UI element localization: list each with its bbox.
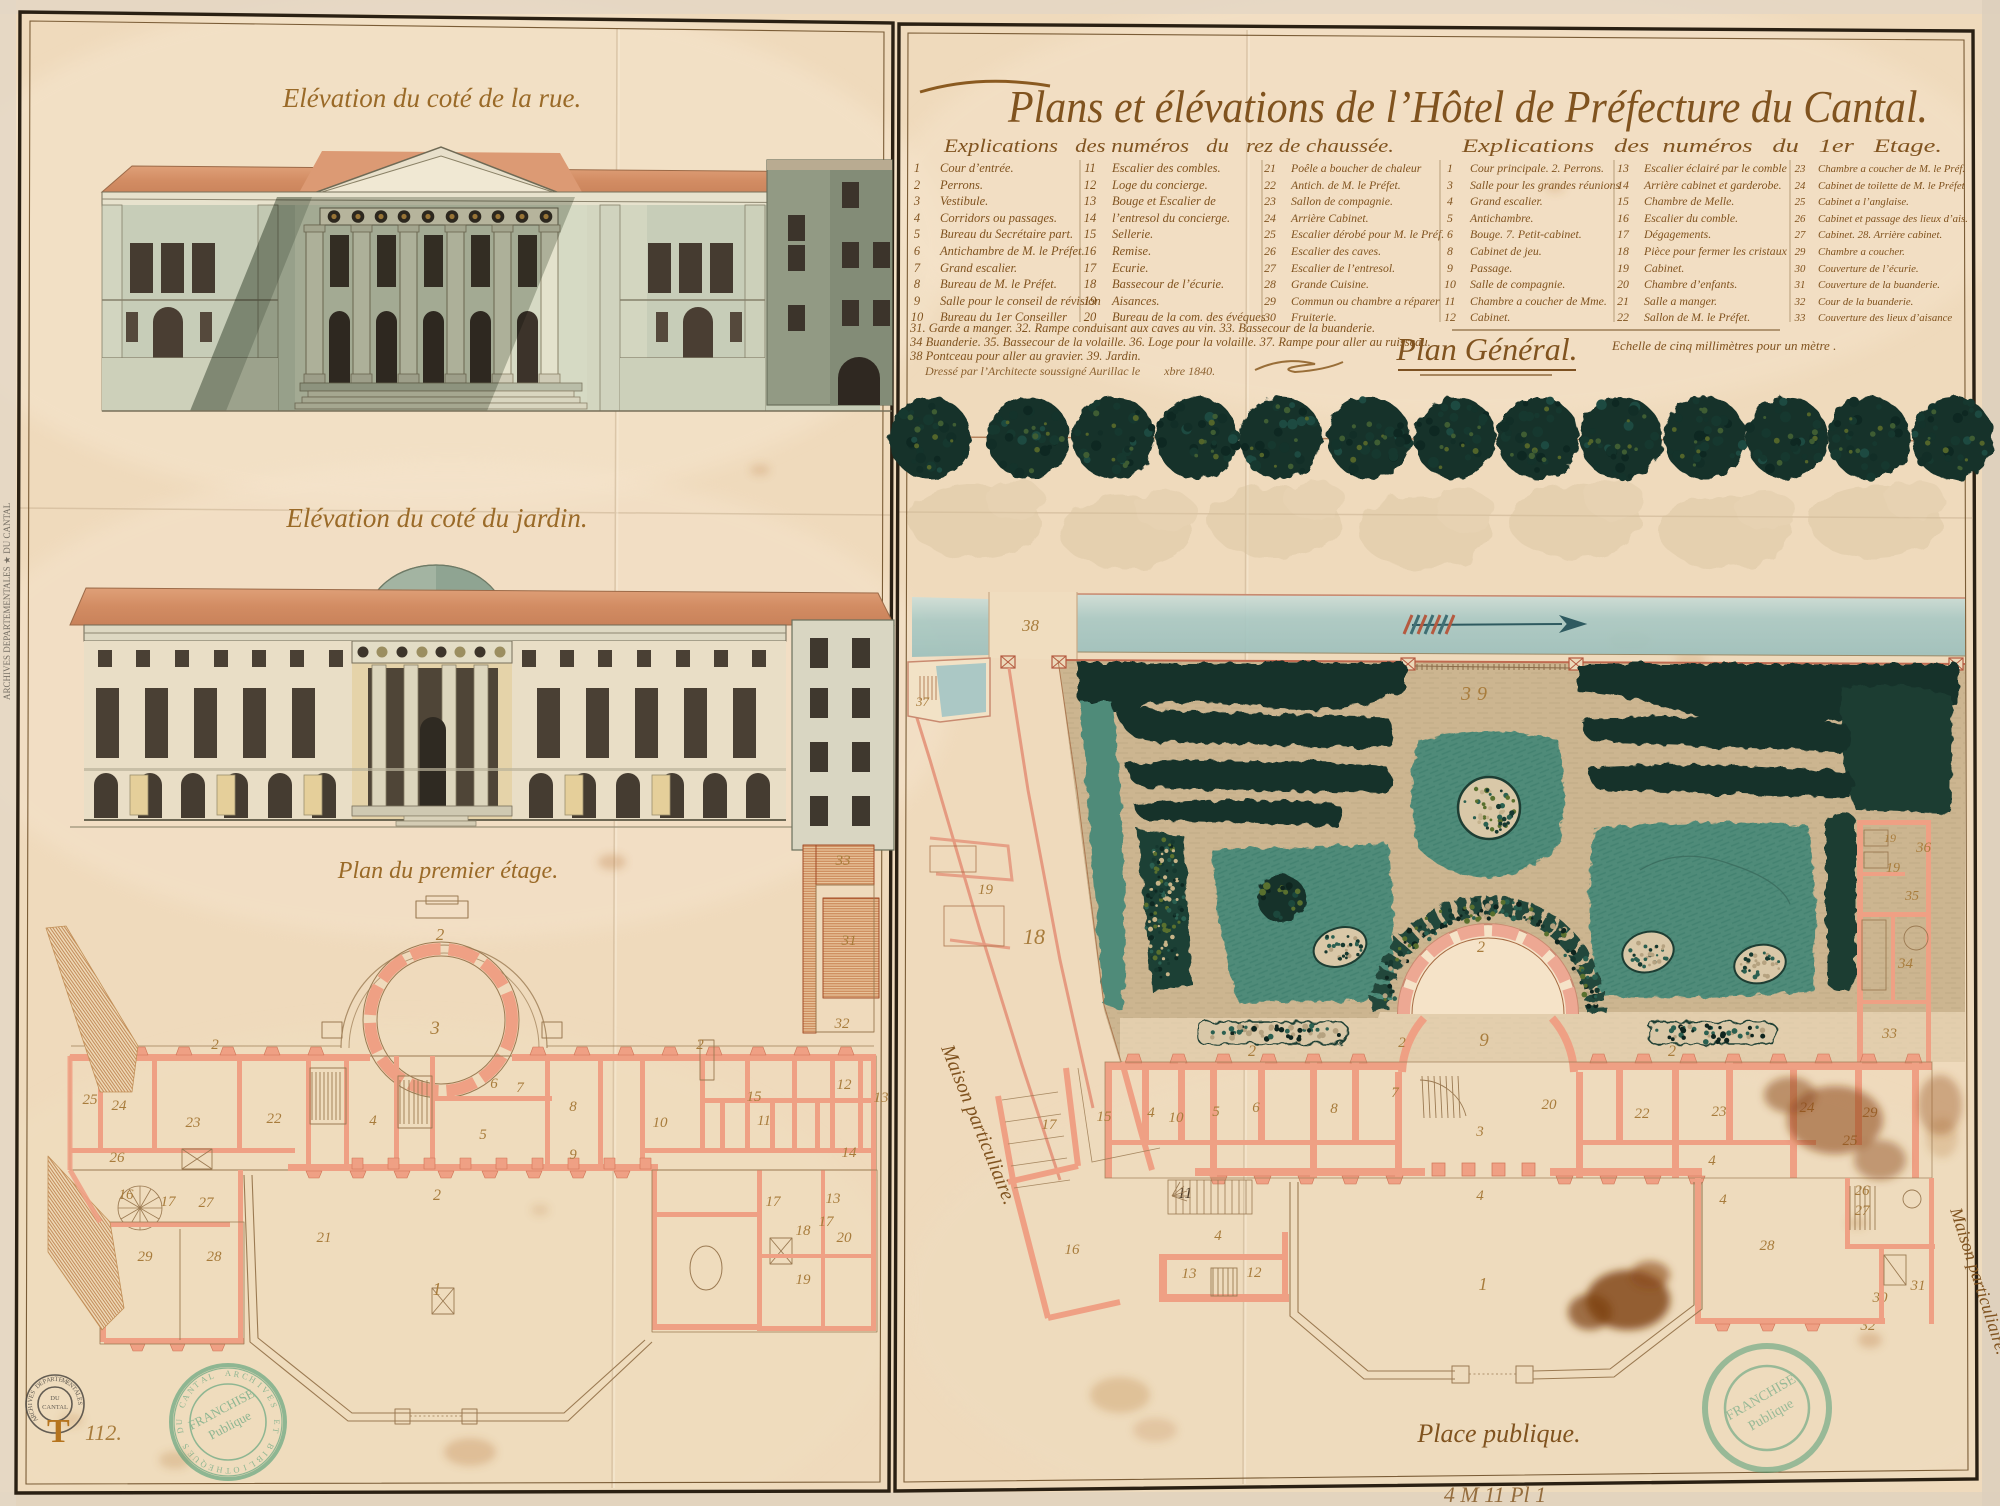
- svg-text:23: 23: [1264, 194, 1276, 208]
- svg-text:27: 27: [199, 1195, 216, 1211]
- svg-text:13: 13: [874, 1090, 889, 1106]
- svg-text:17: 17: [1084, 261, 1097, 275]
- svg-text:Bureau de M. le Préfet.: Bureau de M. le Préfet.: [940, 277, 1057, 291]
- svg-text:CANTAL: CANTAL: [42, 1404, 68, 1411]
- svg-text:Escalier des caves.: Escalier des caves.: [1290, 244, 1381, 258]
- svg-text:26: 26: [1795, 213, 1806, 225]
- svg-text:34: 34: [1897, 956, 1914, 972]
- svg-text:6: 6: [490, 1076, 498, 1092]
- svg-text:17: 17: [819, 1214, 836, 1230]
- svg-text:29: 29: [138, 1249, 154, 1265]
- svg-text:27: 27: [1795, 229, 1806, 241]
- svg-text:30: 30: [1794, 263, 1806, 275]
- svg-text:12: 12: [1084, 178, 1097, 192]
- svg-text:9: 9: [1447, 261, 1453, 275]
- svg-text:Plans et élévations de l’Hôtel: Plans et élévations de l’Hôtel de Préfec…: [1007, 81, 1928, 132]
- svg-text:16: 16: [1084, 244, 1097, 258]
- svg-text:9: 9: [1479, 1030, 1489, 1051]
- svg-text:4: 4: [1708, 1153, 1716, 1169]
- svg-text:4 M 11 Pl 1: 4 M 11 Pl 1: [1444, 1482, 1546, 1506]
- svg-text:T: T: [47, 1413, 70, 1450]
- svg-text:6: 6: [1447, 227, 1453, 241]
- svg-text:18: 18: [1023, 924, 1045, 949]
- svg-text:25: 25: [1264, 227, 1276, 241]
- svg-text:A: A: [225, 1368, 232, 1378]
- svg-text:Remise.: Remise.: [1111, 244, 1151, 258]
- svg-text:19: 19: [1084, 294, 1097, 308]
- svg-text:16: 16: [1065, 1242, 1081, 1258]
- svg-text:4: 4: [1147, 1105, 1155, 1121]
- svg-text:4: 4: [914, 211, 920, 225]
- svg-text:4: 4: [369, 1113, 377, 1129]
- svg-text:22: 22: [1617, 310, 1629, 324]
- svg-text:Loge du concierge.: Loge du concierge.: [1111, 178, 1208, 192]
- svg-text:8: 8: [1330, 1101, 1338, 1117]
- svg-text:Sallon de M. le Préfet.: Sallon de M. le Préfet.: [1644, 310, 1750, 324]
- svg-text:17: 17: [161, 1194, 178, 1210]
- svg-text:Arrière Cabinet.: Arrière Cabinet.: [1290, 211, 1369, 225]
- svg-text:2: 2: [1668, 1043, 1676, 1060]
- svg-text:Cabinet. 28. Arrière cabinet.: Cabinet. 28. Arrière cabinet.: [1818, 229, 1942, 241]
- svg-text:Chambre de Melle.: Chambre de Melle.: [1644, 194, 1734, 208]
- svg-text:Corridors ou passages.: Corridors ou passages.: [940, 211, 1057, 225]
- svg-text:Cabinet a l’anglaise.: Cabinet a l’anglaise.: [1818, 196, 1909, 208]
- svg-text:33: 33: [835, 853, 851, 869]
- svg-text:23: 23: [1795, 163, 1806, 175]
- svg-text:31: 31: [1910, 1278, 1926, 1294]
- svg-text:20: 20: [1617, 277, 1629, 291]
- svg-text:Bassecour de l’écurie.: Bassecour de l’écurie.: [1112, 277, 1224, 291]
- svg-text:28: 28: [1760, 1238, 1776, 1254]
- svg-text:22: 22: [267, 1111, 283, 1127]
- svg-text:29: 29: [1264, 294, 1276, 308]
- svg-text:28: 28: [207, 1249, 223, 1265]
- svg-text:Elévation du coté du jardin.: Elévation du coté du jardin.: [285, 503, 587, 533]
- svg-text:Salle a manger.: Salle a manger.: [1644, 294, 1717, 308]
- svg-text:Chambre a coucher.: Chambre a coucher.: [1818, 246, 1905, 258]
- svg-text:2: 2: [696, 1037, 704, 1053]
- svg-text:28: 28: [1264, 277, 1276, 291]
- svg-text:Commun ou chambre a réparer: Commun ou chambre a réparer: [1291, 294, 1440, 308]
- svg-text:15: 15: [747, 1089, 763, 1105]
- svg-text:Escalier dérobé pour M. le Pré: Escalier dérobé pour M. le Préf.: [1290, 227, 1444, 241]
- svg-text:2: 2: [1398, 1035, 1406, 1051]
- svg-text:12: 12: [1444, 310, 1456, 324]
- svg-text:34 Buanderie. 35. Bassecour de: 34 Buanderie. 35. Bassecour de la volail…: [909, 335, 1431, 349]
- svg-text:19: 19: [796, 1272, 812, 1288]
- svg-text:Chambre a coucher de M. le Pré: Chambre a coucher de M. le Préf.: [1818, 163, 1965, 175]
- svg-text:Sellerie.: Sellerie.: [1112, 227, 1153, 241]
- svg-text:Salle pour les grandes réunion: Salle pour les grandes réunions: [1470, 178, 1620, 192]
- svg-text:31. Garde a manger. 32. Rampe: 31. Garde a manger. 32. Rampe conduisant…: [909, 321, 1375, 335]
- svg-text:Poêle a boucher de chaleur: Poêle a boucher de chaleur: [1290, 161, 1422, 175]
- svg-text:12: 12: [1247, 1265, 1263, 1281]
- svg-text:2: 2: [1477, 939, 1485, 956]
- svg-text:Salle de compagnie.: Salle de compagnie.: [1470, 277, 1565, 291]
- svg-text:5: 5: [914, 227, 920, 241]
- svg-text:33: 33: [1881, 1026, 1897, 1042]
- svg-text:2: 2: [436, 925, 445, 944]
- svg-text:5: 5: [1212, 1104, 1220, 1120]
- svg-text:2: 2: [433, 1187, 441, 1204]
- svg-text:DU: DU: [50, 1395, 60, 1402]
- svg-text:4: 4: [1214, 1228, 1222, 1244]
- svg-text:10: 10: [1169, 1110, 1185, 1126]
- svg-text:Grande Cuisine.: Grande Cuisine.: [1291, 277, 1369, 291]
- svg-text:Sallon de compagnie.: Sallon de compagnie.: [1291, 194, 1393, 208]
- svg-text:26: 26: [110, 1150, 126, 1166]
- svg-text:33: 33: [1794, 312, 1806, 324]
- svg-text:21: 21: [1617, 294, 1629, 308]
- svg-text:11: 11: [1084, 161, 1096, 175]
- svg-text:18: 18: [1617, 244, 1629, 258]
- svg-text:Explications des numéros d: Explications des numéros du rez de chaus…: [943, 136, 1394, 157]
- svg-text:21: 21: [1264, 161, 1276, 175]
- svg-text:S: S: [76, 1401, 83, 1405]
- svg-text:Aisances.: Aisances.: [1111, 294, 1160, 308]
- svg-text:Ecurie.: Ecurie.: [1111, 261, 1148, 275]
- svg-text:13: 13: [826, 1191, 841, 1207]
- svg-text:18: 18: [1084, 277, 1097, 291]
- svg-text:37: 37: [915, 694, 930, 709]
- svg-text:2: 2: [1248, 1043, 1256, 1060]
- svg-text:25: 25: [1795, 196, 1806, 208]
- svg-text:7: 7: [914, 261, 921, 275]
- svg-text:31: 31: [1794, 279, 1806, 291]
- svg-text:5: 5: [1447, 211, 1453, 225]
- svg-text:Vestibule.: Vestibule.: [940, 194, 988, 208]
- svg-text:1: 1: [914, 161, 920, 175]
- svg-text:20: 20: [1542, 1097, 1558, 1113]
- svg-text:21: 21: [317, 1230, 332, 1246]
- svg-text:3: 3: [1446, 178, 1453, 192]
- svg-text:17: 17: [1617, 227, 1630, 241]
- svg-text:38 Pontceau pour aller au grav: 38 Pontceau pour aller au gravier. 39. J…: [909, 349, 1141, 363]
- svg-text:112.: 112.: [85, 1420, 122, 1445]
- svg-text:14: 14: [842, 1145, 858, 1161]
- svg-text:Dressé par l’Architecte soussi: Dressé par l’Architecte soussigné Aurill…: [924, 364, 1215, 378]
- svg-text:1: 1: [1479, 1274, 1488, 1294]
- svg-text:Grand escalier.: Grand escalier.: [1470, 194, 1543, 208]
- svg-text:5: 5: [479, 1127, 487, 1143]
- svg-text:Explications des numéros: Explications des numéros du 1er Etage.: [1461, 136, 1942, 157]
- svg-text:ARCHIVES DEPARTEMENTALES ★ DU: ARCHIVES DEPARTEMENTALES ★ DU CANTAL: [2, 503, 12, 700]
- svg-text:3: 3: [1475, 1124, 1484, 1140]
- svg-text:Chambre d’enfants.: Chambre d’enfants.: [1644, 277, 1737, 291]
- svg-text:Place publique.: Place publique.: [1416, 1419, 1580, 1448]
- svg-text:Grand escalier.: Grand escalier.: [940, 261, 1017, 275]
- svg-text:l’entresol du concierge.: l’entresol du concierge.: [1112, 211, 1230, 225]
- svg-text:4: 4: [1447, 194, 1453, 208]
- svg-text:11: 11: [1445, 294, 1456, 308]
- svg-text:13: 13: [1182, 1266, 1197, 1282]
- svg-text:12: 12: [837, 1077, 853, 1093]
- svg-text:19: 19: [978, 882, 994, 898]
- svg-text:3: 3: [429, 1018, 440, 1039]
- svg-text:Elévation du coté de la rue.: Elévation du coté de la rue.: [282, 83, 581, 113]
- svg-text:Cabinet de toilette de M. le P: Cabinet de toilette de M. le Préfet: [1818, 180, 1966, 192]
- svg-text:26: 26: [1264, 244, 1276, 258]
- svg-text:Plan Général.: Plan Général.: [1395, 331, 1577, 367]
- svg-text:Perrons.: Perrons.: [939, 178, 983, 192]
- svg-text:Bureau du Secrétaire part.: Bureau du Secrétaire part.: [940, 227, 1073, 241]
- svg-text:Pièce pour fermer les cristaux: Pièce pour fermer les cristaux: [1643, 244, 1788, 258]
- svg-text:22: 22: [1264, 178, 1276, 192]
- svg-text:13: 13: [1084, 194, 1097, 208]
- svg-text:23: 23: [186, 1115, 201, 1131]
- svg-text:35: 35: [1904, 889, 1919, 904]
- svg-text:Arrière cabinet et garderobe.: Arrière cabinet et garderobe.: [1643, 178, 1782, 192]
- svg-text:Antichambre.: Antichambre.: [1469, 211, 1533, 225]
- svg-text:19: 19: [1886, 861, 1900, 876]
- svg-text:Escalier des combles.: Escalier des combles.: [1111, 161, 1221, 175]
- svg-text:Cour principale. 2. Perrons.: Cour principale. 2. Perrons.: [1470, 161, 1604, 175]
- svg-text:Escalier du comble.: Escalier du comble.: [1643, 211, 1738, 225]
- svg-text:13: 13: [1617, 161, 1629, 175]
- svg-text:Cabinet de jeu.: Cabinet de jeu.: [1470, 244, 1542, 258]
- svg-text:Cabinet.: Cabinet.: [1470, 310, 1510, 324]
- svg-text:T: T: [225, 1466, 231, 1476]
- svg-text:32: 32: [1794, 296, 1806, 308]
- svg-text:3: 3: [913, 194, 920, 208]
- svg-text:Couverture des lieux d’aisance: Couverture des lieux d’aisance: [1818, 312, 1952, 324]
- svg-text:Chambre a coucher de Mme.: Chambre a coucher de Mme.: [1470, 294, 1607, 308]
- svg-text:Bouge. 7. Petit-cabinet.: Bouge. 7. Petit-cabinet.: [1470, 227, 1582, 241]
- svg-text:19: 19: [1884, 831, 1896, 845]
- svg-text:24: 24: [1264, 211, 1276, 225]
- svg-text:39: 39: [1460, 683, 1493, 705]
- svg-text:1: 1: [1447, 161, 1453, 175]
- svg-text:16: 16: [1617, 211, 1629, 225]
- svg-text:15: 15: [1097, 1109, 1113, 1125]
- svg-text:Plan du premier étage.: Plan du premier étage.: [337, 858, 558, 884]
- svg-text:Bouge et Escalier de: Bouge et Escalier de: [1112, 194, 1216, 208]
- svg-text:Couverture de la buanderie.: Couverture de la buanderie.: [1818, 279, 1940, 291]
- svg-text:24: 24: [112, 1098, 128, 1114]
- svg-text:22: 22: [1635, 1106, 1651, 1122]
- svg-text:19: 19: [1617, 261, 1629, 275]
- svg-text:2: 2: [211, 1037, 219, 1053]
- svg-text:4: 4: [1476, 1188, 1484, 1204]
- svg-text:15: 15: [1617, 194, 1629, 208]
- svg-text:U: U: [174, 1419, 184, 1425]
- svg-text:15: 15: [1084, 227, 1097, 241]
- svg-text:Antichambre de M. le Préfet.: Antichambre de M. le Préfet.: [939, 244, 1085, 258]
- svg-text:4: 4: [1719, 1192, 1727, 1208]
- svg-text:17: 17: [766, 1194, 783, 1210]
- svg-text:14: 14: [1084, 211, 1097, 225]
- svg-text:1: 1: [433, 1279, 442, 1299]
- svg-text:Couverture de l’écurie.: Couverture de l’écurie.: [1818, 263, 1919, 275]
- svg-text:8: 8: [1447, 244, 1453, 258]
- svg-text:Cour d’entrée.: Cour d’entrée.: [940, 161, 1014, 175]
- svg-text:6: 6: [1252, 1100, 1260, 1116]
- svg-text:31: 31: [841, 933, 857, 949]
- svg-text:14: 14: [1617, 178, 1629, 192]
- svg-text:Antich. de M. le Préfet.: Antich. de M. le Préfet.: [1290, 178, 1401, 192]
- svg-text:11: 11: [757, 1113, 771, 1129]
- svg-text:8: 8: [569, 1099, 577, 1115]
- svg-text:Escalier éclairé par le comble: Escalier éclairé par le comble: [1643, 161, 1787, 175]
- svg-text:E: E: [272, 1419, 282, 1424]
- svg-text:27: 27: [1264, 261, 1277, 275]
- svg-text:8: 8: [914, 277, 921, 291]
- svg-text:25: 25: [83, 1092, 99, 1108]
- svg-text:32: 32: [834, 1016, 851, 1032]
- svg-text:26: 26: [1855, 1183, 1871, 1199]
- svg-text:Cabinet et passage des lieux d: Cabinet et passage des lieux d’ais.: [1818, 213, 1968, 225]
- svg-text:24: 24: [1795, 180, 1806, 192]
- svg-text:17: 17: [1042, 1117, 1059, 1133]
- svg-text:38: 38: [1021, 616, 1040, 635]
- svg-text:10: 10: [1444, 277, 1456, 291]
- svg-text:18: 18: [796, 1223, 812, 1239]
- svg-text:Salle pour le conseil de révis: Salle pour le conseil de révision: [940, 294, 1101, 308]
- svg-text:36: 36: [1915, 840, 1932, 856]
- svg-text:27: 27: [1855, 1203, 1872, 1219]
- svg-text:16: 16: [119, 1187, 135, 1203]
- svg-text:9: 9: [569, 1147, 577, 1163]
- svg-text:Dégagements.: Dégagements.: [1643, 227, 1711, 241]
- svg-text:23: 23: [1712, 1104, 1727, 1120]
- svg-text:10: 10: [653, 1115, 669, 1131]
- svg-text:20: 20: [837, 1230, 853, 1246]
- svg-text:Escalier de l’entresol.: Escalier de l’entresol.: [1290, 261, 1395, 275]
- svg-text:Passage.: Passage.: [1469, 261, 1512, 275]
- svg-text:Cabinet.: Cabinet.: [1644, 261, 1684, 275]
- svg-text:6: 6: [914, 244, 921, 258]
- svg-text:2: 2: [914, 178, 920, 192]
- svg-text:Cour de la buanderie.: Cour de la buanderie.: [1818, 296, 1913, 308]
- svg-text:29: 29: [1795, 246, 1806, 258]
- svg-text:Echelle de cinq millimètres po: Echelle de cinq millimètres pour un mètr…: [1611, 338, 1836, 353]
- svg-text:9: 9: [914, 294, 921, 308]
